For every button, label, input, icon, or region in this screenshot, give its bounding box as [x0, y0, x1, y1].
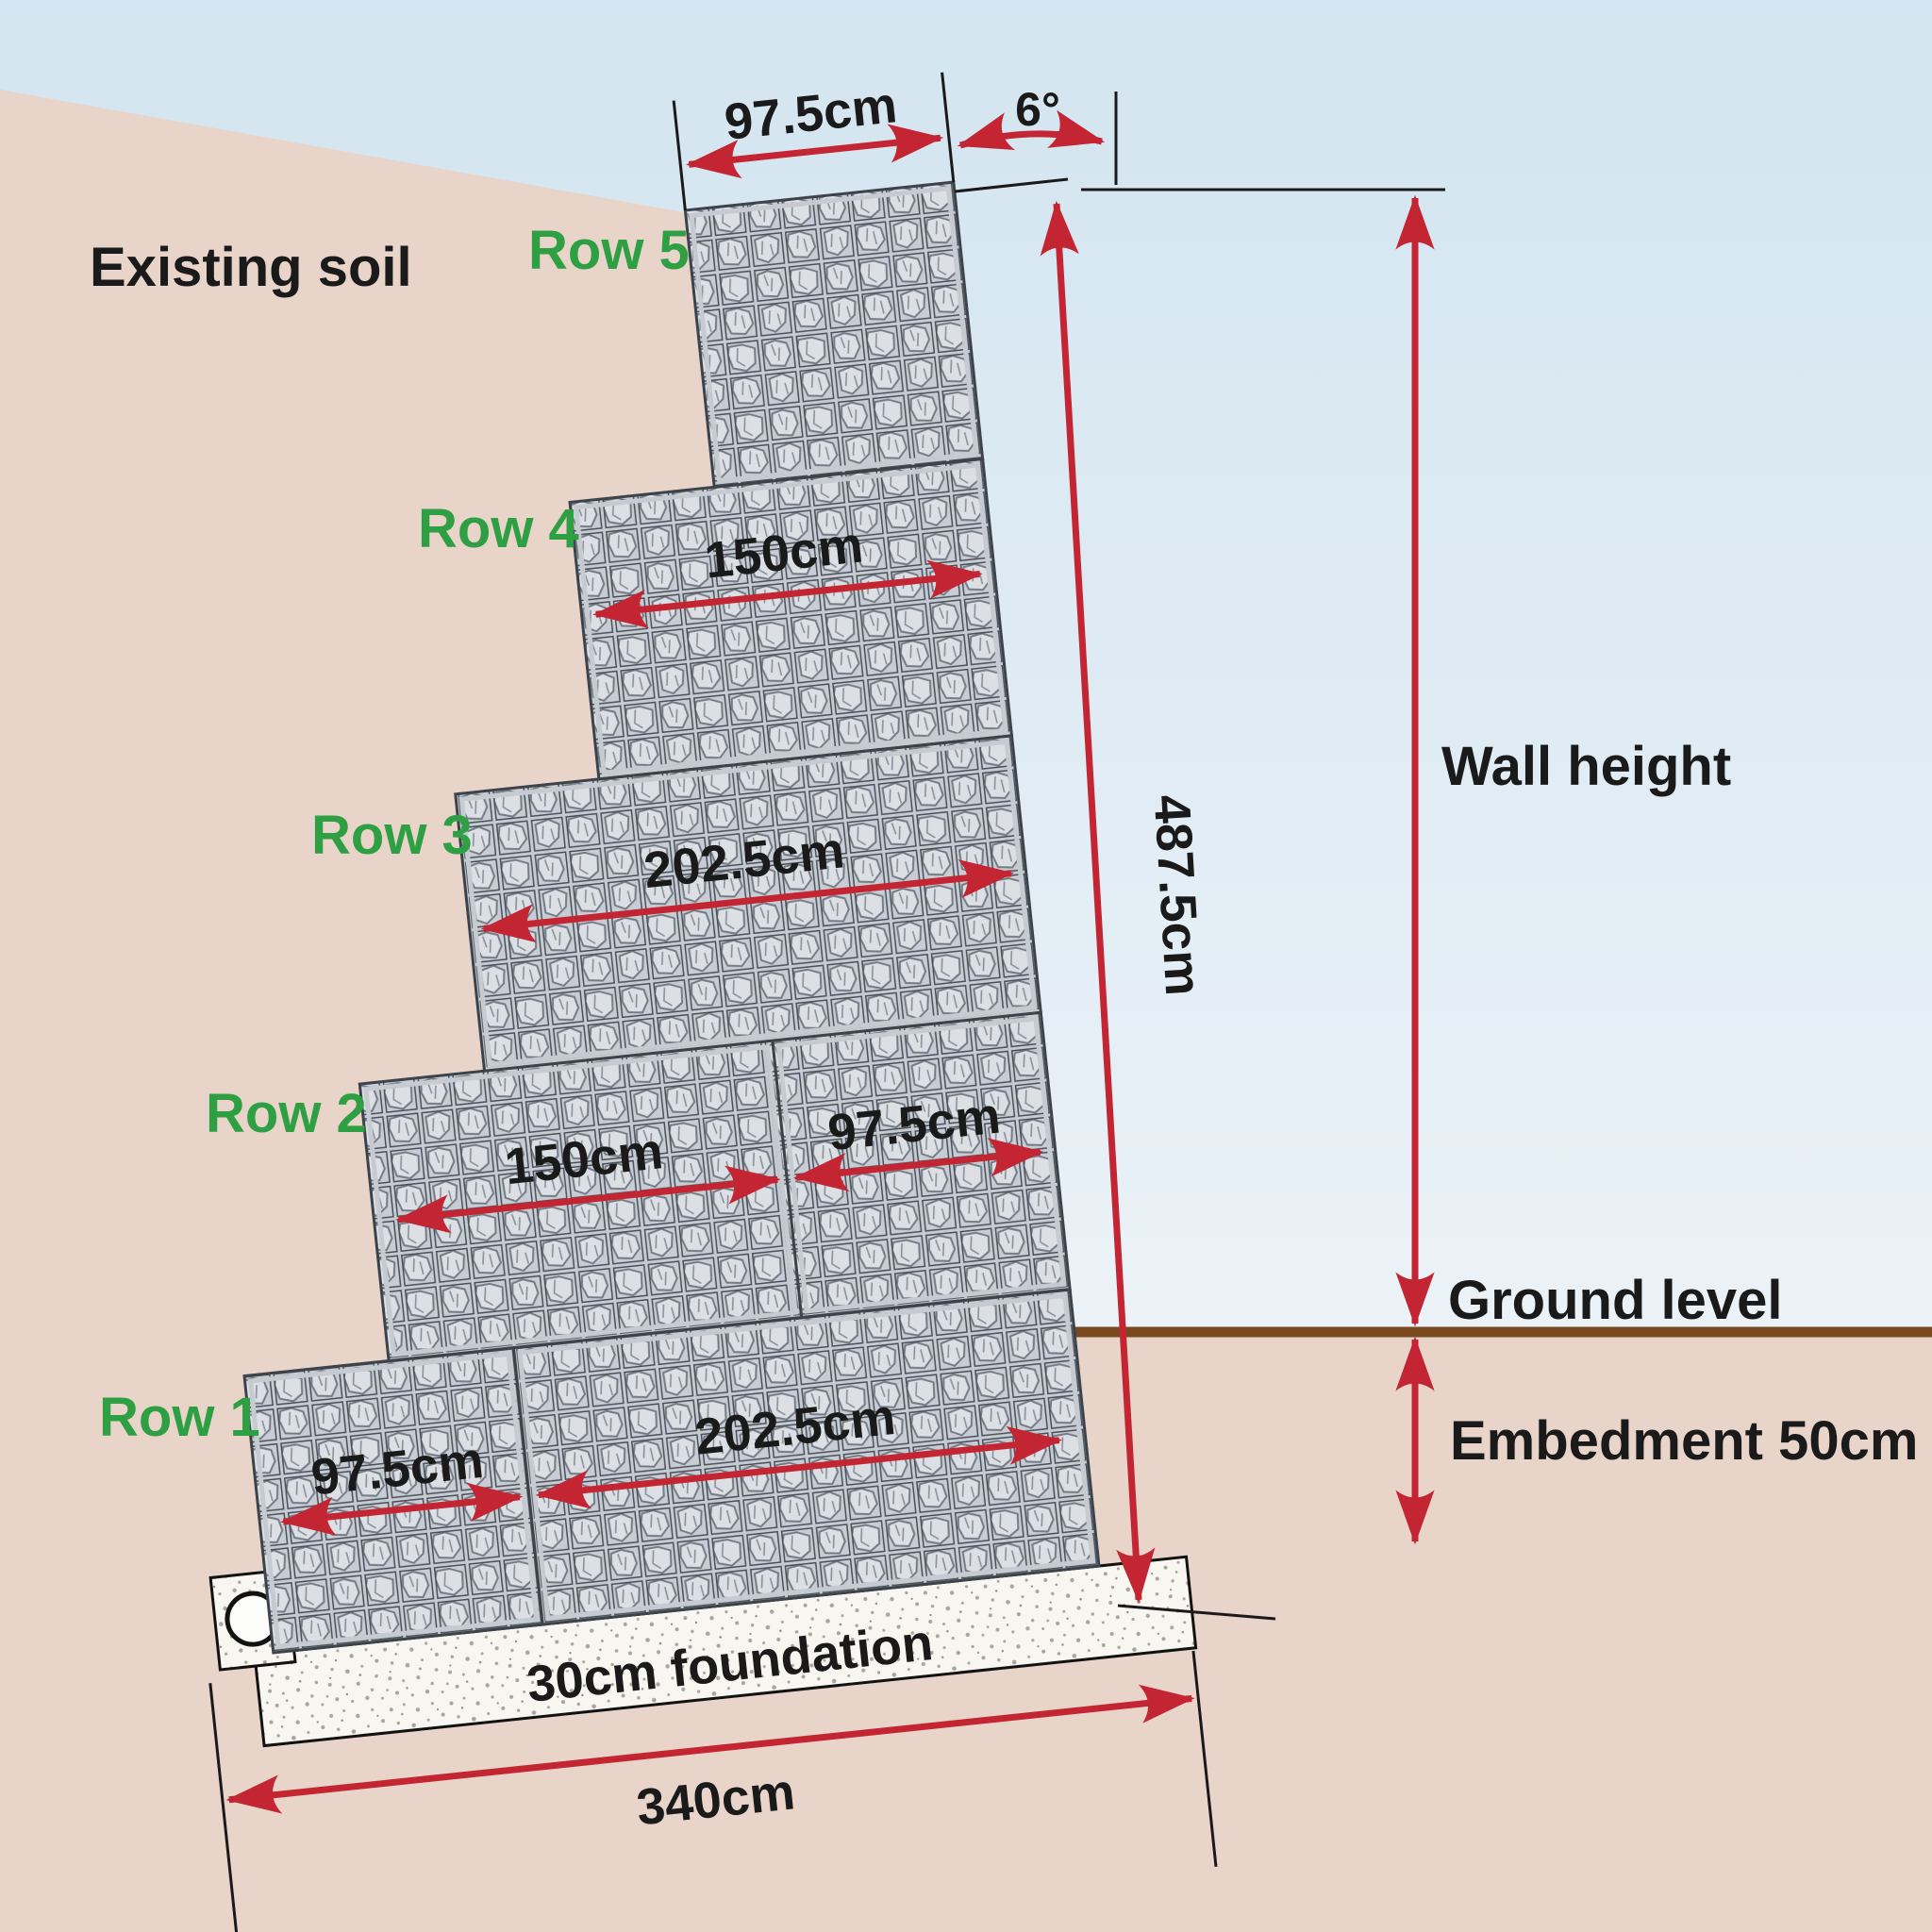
- row3-label: Row 3: [311, 805, 473, 866]
- row2-label: Row 2: [206, 1083, 367, 1144]
- ground-level-label: Ground level: [1448, 1270, 1783, 1331]
- embedment-label: Embedment 50cm: [1450, 1410, 1918, 1472]
- existing-soil-label: Existing soil: [90, 237, 412, 298]
- wall-length-label: 487.5cm: [1143, 793, 1212, 997]
- row4-gabion: [570, 458, 1011, 778]
- batter-angle-label: 6°: [1015, 83, 1060, 136]
- row4-label: Row 4: [418, 498, 579, 559]
- row1-label: Row 1: [99, 1387, 260, 1448]
- wall-height-label: Wall height: [1441, 736, 1731, 797]
- row5-gabion: [685, 182, 982, 487]
- row5-label: Row 5: [528, 220, 690, 281]
- diagram-page: 97.5cm 150cm 202.5cm 150cm 97.5cm 97.5cm…: [0, 0, 1932, 1932]
- gabion-wall-diagram: 97.5cm 150cm 202.5cm 150cm 97.5cm 97.5cm…: [0, 0, 1932, 1932]
